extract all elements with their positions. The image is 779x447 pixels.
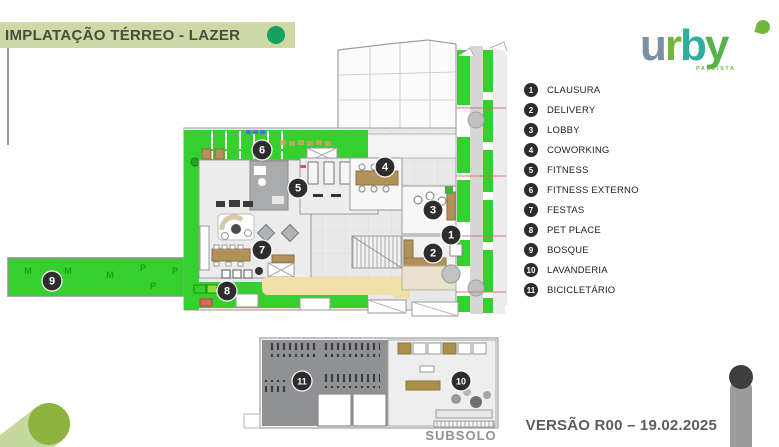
legend-number-badge: 1 bbox=[524, 83, 538, 97]
legend-item-label: BICICLETÁRIO bbox=[547, 285, 615, 296]
legend-item-5: 5FITNESS bbox=[524, 160, 674, 180]
plan-marker-4: 4 bbox=[375, 157, 395, 177]
legend-item-label: FITNESS EXTERNO bbox=[547, 185, 639, 196]
grill-counter bbox=[216, 200, 253, 207]
legend-item-label: COWORKING bbox=[547, 145, 610, 156]
legend-item-label: LAVANDERIA bbox=[547, 265, 608, 276]
stairs bbox=[352, 236, 402, 268]
title-dot-icon bbox=[267, 26, 285, 44]
legend-item-label: BOSQUE bbox=[547, 245, 589, 256]
svg-text:10: 10 bbox=[456, 377, 466, 387]
sand-walkway bbox=[262, 277, 410, 295]
tree-letter: M bbox=[64, 266, 72, 276]
legend-item-2: 2DELIVERY bbox=[524, 100, 674, 120]
plan-marker-8: 8 bbox=[217, 281, 237, 301]
legend-item-1: 1CLAUSURA bbox=[524, 80, 674, 100]
legend-item-label: DELIVERY bbox=[547, 105, 595, 116]
legend-number-badge: 8 bbox=[524, 223, 538, 237]
page-title: IMPLATAÇÃO TÉRREO - LAZER bbox=[0, 27, 240, 44]
svg-text:1: 1 bbox=[448, 230, 454, 242]
legend-number-badge: 3 bbox=[524, 123, 538, 137]
svg-text:11: 11 bbox=[297, 377, 307, 387]
legend-item-10: 10LAVANDERIA bbox=[524, 260, 674, 280]
logo-letter: b bbox=[680, 21, 705, 70]
legend-item-label: FITNESS bbox=[547, 165, 589, 176]
plan-marker-3: 3 bbox=[423, 200, 443, 220]
legend-number-badge: 5 bbox=[524, 163, 538, 177]
legend-item-6: 6FITNESS EXTERNO bbox=[524, 180, 674, 200]
legend-item-label: FESTAS bbox=[547, 205, 584, 216]
tree-letter: P bbox=[140, 263, 146, 273]
legend-item-8: 8PET PLACE bbox=[524, 220, 674, 240]
legend-number-badge: 11 bbox=[524, 283, 538, 297]
subsolo-label: SUBSOLO bbox=[420, 428, 502, 443]
plan-marker-6: 6 bbox=[252, 140, 272, 160]
legend: 1CLAUSURA2DELIVERY3LOBBY4COWORKING5FITNE… bbox=[524, 80, 674, 300]
slide: 1234567891110MMMPPP IMPLATAÇÃO TÉRREO - … bbox=[0, 0, 779, 447]
legend-number-badge: 7 bbox=[524, 203, 538, 217]
logo-letter: u bbox=[640, 21, 665, 70]
svg-text:4: 4 bbox=[382, 162, 389, 174]
laundry-counter bbox=[406, 381, 440, 390]
legend-number-badge: 10 bbox=[524, 263, 538, 277]
svg-text:2: 2 bbox=[430, 248, 436, 260]
bosque-area bbox=[8, 258, 185, 296]
logo-letter: r bbox=[665, 21, 680, 70]
legend-number-badge: 4 bbox=[524, 143, 538, 157]
legend-item-label: PET PLACE bbox=[547, 225, 601, 236]
legend-number-badge: 2 bbox=[524, 103, 538, 117]
swoosh-decoration bbox=[0, 403, 70, 447]
legend-item-7: 7FESTAS bbox=[524, 200, 674, 220]
svg-text:8: 8 bbox=[224, 286, 230, 298]
legend-item-9: 9BOSQUE bbox=[524, 240, 674, 260]
svg-text:7: 7 bbox=[259, 245, 265, 257]
legend-item-3: 3LOBBY bbox=[524, 120, 674, 140]
legend-number-badge: 9 bbox=[524, 243, 538, 257]
svg-text:9: 9 bbox=[49, 276, 55, 288]
legend-item-label: CLAUSURA bbox=[547, 85, 600, 96]
title-bar: IMPLATAÇÃO TÉRREO - LAZER bbox=[0, 22, 295, 48]
tree-letter: M bbox=[24, 266, 32, 276]
logo-letter: y bbox=[705, 21, 727, 70]
urby-logo: urby PAULISTA bbox=[640, 22, 760, 78]
logo-wordmark: urby bbox=[640, 22, 760, 70]
tree-letter: M bbox=[106, 270, 114, 280]
plan-marker-10: 10 bbox=[451, 371, 471, 391]
legend-item-4: 4COWORKING bbox=[524, 140, 674, 160]
svg-text:6: 6 bbox=[259, 145, 265, 157]
legend-item-label: LOBBY bbox=[547, 125, 580, 136]
left-edge-line bbox=[7, 48, 9, 145]
plan-marker-5: 5 bbox=[288, 178, 308, 198]
legend-number-badge: 6 bbox=[524, 183, 538, 197]
treadmills bbox=[308, 162, 350, 184]
svg-text:3: 3 bbox=[430, 205, 436, 217]
street-tree bbox=[468, 112, 484, 128]
scroll-dot-decoration bbox=[729, 365, 753, 389]
plan-marker-2: 2 bbox=[423, 243, 443, 263]
logo-subtitle: PAULISTA bbox=[696, 66, 735, 72]
plan-marker-9: 9 bbox=[42, 271, 62, 291]
version-label: VERSÃO R00 – 19.02.2025 bbox=[526, 417, 717, 434]
festas-table bbox=[212, 249, 250, 261]
svg-text:5: 5 bbox=[295, 183, 301, 195]
tree-letter: P bbox=[150, 281, 156, 291]
green-strip-outer bbox=[483, 50, 493, 313]
bike-parking-marks bbox=[246, 130, 265, 134]
plan-marker-1: 1 bbox=[441, 225, 461, 245]
street-tree bbox=[468, 280, 484, 296]
tree-letter: P bbox=[172, 266, 178, 276]
legend-item-11: 11BICICLETÁRIO bbox=[524, 280, 674, 300]
plan-marker-7: 7 bbox=[252, 240, 272, 260]
plan-marker-11: 11 bbox=[292, 371, 312, 391]
